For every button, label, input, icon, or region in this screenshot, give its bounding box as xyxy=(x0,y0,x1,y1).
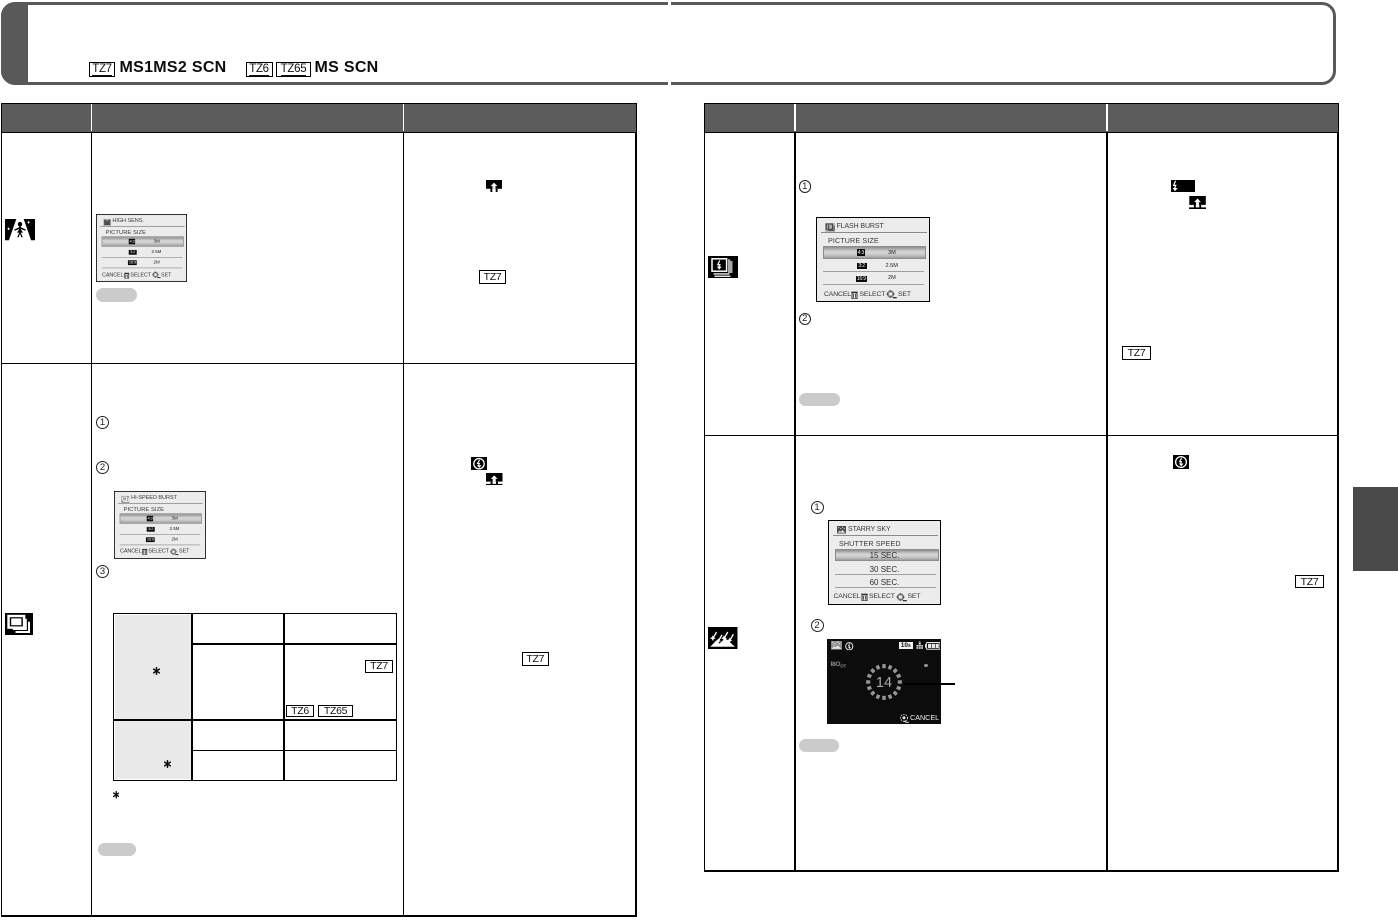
svg-text:14: 14 xyxy=(876,675,892,691)
